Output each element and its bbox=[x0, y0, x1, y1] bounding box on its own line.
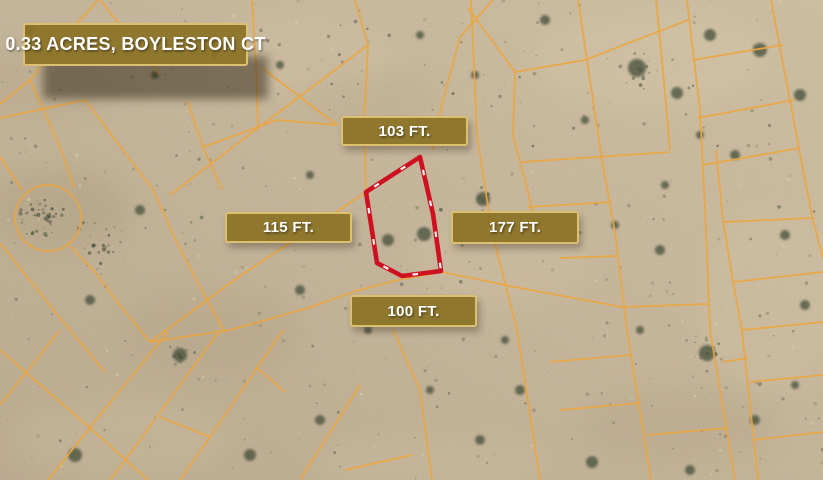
dimension-badge-bottom: 100 FT. bbox=[350, 295, 477, 327]
dimension-badge-top: 103 FT. bbox=[341, 116, 468, 146]
dimension-badge-left: 115 FT. bbox=[225, 212, 352, 243]
title-badge: 0.33 ACRES, BOYLESTON CT bbox=[23, 23, 248, 66]
grain-overlay-light bbox=[0, 0, 823, 480]
lot-listing-map: 0.33 ACRES, BOYLESTON CT 103 FT. 115 FT.… bbox=[0, 0, 823, 480]
satellite-terrain bbox=[0, 0, 823, 480]
dimension-badge-right: 177 FT. bbox=[451, 211, 579, 244]
